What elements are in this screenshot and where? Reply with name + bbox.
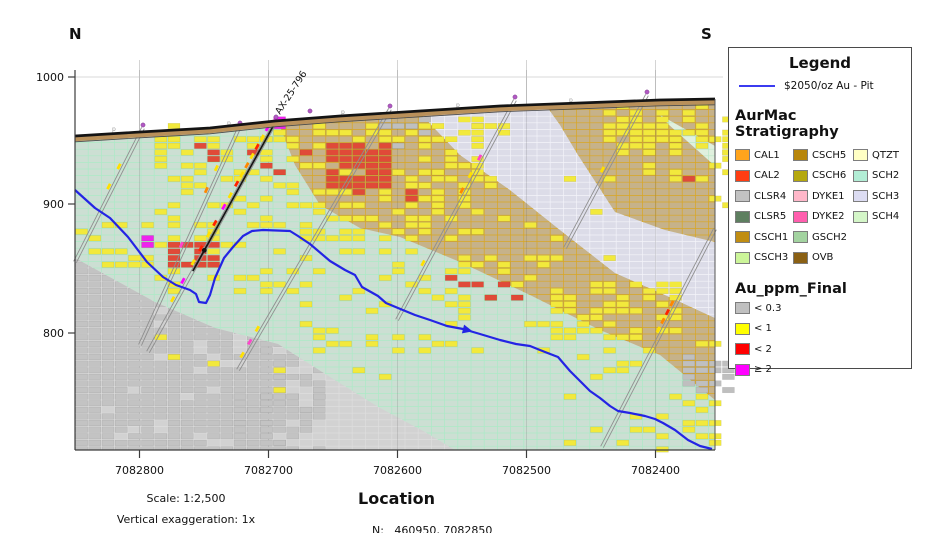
legend-entry-label: GSCH2 xyxy=(812,232,847,243)
x-tick-label: 7082800 xyxy=(115,464,164,477)
stratigraphy-legend-title: AurMac Stratigraphy xyxy=(735,108,905,140)
legend-entry-label: < 1 xyxy=(754,323,772,334)
x-tick-label: 7082700 xyxy=(244,464,293,477)
legend-swatch xyxy=(735,343,750,355)
legend-swatch xyxy=(735,364,750,376)
legend-entry-SCH2: SCH2 xyxy=(853,166,907,187)
collar-dot xyxy=(388,104,392,108)
legend-entry-CLSR4: CLSR4 xyxy=(735,186,793,207)
legend-entry-label: CSCH3 xyxy=(754,252,788,263)
legend-swatch xyxy=(735,323,750,335)
drillhole-label: AX-25-796 xyxy=(273,69,309,117)
legend-entry-CSCH6: CSCH6 xyxy=(793,166,853,187)
collar-dot xyxy=(274,115,278,119)
legend-swatch xyxy=(853,211,868,223)
legend-swatch xyxy=(735,302,750,314)
legend-swatch xyxy=(793,149,808,161)
collar-dot xyxy=(645,90,649,94)
legend-entry-CAL2: CAL2 xyxy=(735,166,793,187)
legend-swatch xyxy=(735,252,750,264)
y-tick-label: 800 xyxy=(43,327,64,340)
legend-swatch xyxy=(853,190,868,202)
legend-entry-label: DYKE2 xyxy=(812,211,845,222)
legend-swatch xyxy=(793,190,808,202)
legend-swatch xyxy=(735,170,750,182)
legend-entry-CAL1: CAL1 xyxy=(735,145,793,166)
legend-title: Legend xyxy=(735,54,905,72)
legend-entry-label: CAL2 xyxy=(754,170,780,181)
legend-entry-label: CSCH5 xyxy=(812,150,846,161)
legend-entry-label: QTZT xyxy=(872,150,899,161)
pit-line-swatch xyxy=(739,85,775,87)
legend-entry-SCH4: SCH4 xyxy=(853,207,907,228)
legend-entry-label: CLSR5 xyxy=(754,211,786,222)
legend-swatch xyxy=(735,149,750,161)
collar-dot xyxy=(513,95,517,99)
legend-entry-label: SCH3 xyxy=(872,191,899,202)
pit-line-label: $2050/oz Au - Pit xyxy=(784,80,874,92)
location-coordinates: N: 460950, 7082850 xyxy=(372,524,492,533)
legend-swatch xyxy=(735,211,750,223)
legend-entry-label: CSCH1 xyxy=(754,232,788,243)
legend-panel: Legend $2050/oz Au - Pit AurMac Stratigr… xyxy=(728,47,912,369)
legend-swatch xyxy=(793,211,808,223)
legend-entry-GSCH2: GSCH2 xyxy=(793,227,853,248)
legend-entry-label: CAL1 xyxy=(754,150,780,161)
legend-swatch xyxy=(853,149,868,161)
legend-entry-≥ 2: ≥ 2 xyxy=(735,364,905,376)
legend-swatch xyxy=(735,231,750,243)
legend-entry-label: SCH4 xyxy=(872,211,899,222)
legend-swatch xyxy=(793,252,808,264)
collar-dot xyxy=(141,123,145,127)
legend-entry-label: ≥ 2 xyxy=(754,364,772,375)
scale-note: Scale: 1:2,500 xyxy=(80,492,292,505)
y-tick-label: 1000 xyxy=(36,71,64,84)
legend-swatch xyxy=(793,170,808,182)
legend-entry-label: < 2 xyxy=(754,344,772,355)
grade-legend-rows: < 0.3< 1< 2≥ 2 xyxy=(735,302,905,376)
legend-entry-< 2: < 2 xyxy=(735,343,905,355)
legend-entry-OVB: OVB xyxy=(793,248,853,269)
legend-swatch xyxy=(735,190,750,202)
legend-entry-CLSR5: CLSR5 xyxy=(735,207,793,228)
legend-entry-DYKE2: DYKE2 xyxy=(793,207,853,228)
surface-peg-mark: p xyxy=(112,126,116,133)
collar-dot xyxy=(308,109,312,113)
legend-entry-< 1: < 1 xyxy=(735,323,905,335)
legend-swatch xyxy=(853,170,868,182)
grade-legend-title: Au_ppm_Final xyxy=(735,281,905,297)
stratigraphy-legend-grid: CAL1CAL2CLSR4CLSR5CSCH1CSCH3CSCH5CSCH6DY… xyxy=(735,145,905,268)
legend-entry-SCH3: SCH3 xyxy=(853,186,907,207)
legend-entry-label: SCH2 xyxy=(872,170,899,181)
legend-entry-QTZT: QTZT xyxy=(853,145,907,166)
x-tick-label: 7082500 xyxy=(502,464,551,477)
legend-entry-label: CLSR4 xyxy=(754,191,786,202)
y-tick-label: 900 xyxy=(43,198,64,211)
legend-entry-CSCH1: CSCH1 xyxy=(735,227,793,248)
legend-entry-DYKE1: DYKE1 xyxy=(793,186,853,207)
x-tick-label: 7082400 xyxy=(631,464,680,477)
legend-entry-CSCH5: CSCH5 xyxy=(793,145,853,166)
x-tick-label: 7082600 xyxy=(373,464,422,477)
legend-entry-label: CSCH6 xyxy=(812,170,846,181)
legend-entry-CSCH3: CSCH3 xyxy=(735,248,793,269)
location-heading: Location xyxy=(358,489,435,508)
legend-entry-< 0.3: < 0.3 xyxy=(735,302,905,314)
legend-entry-label: DYKE1 xyxy=(812,191,845,202)
legend-entry-label: OVB xyxy=(812,252,833,263)
legend-entry-label: < 0.3 xyxy=(754,303,781,314)
legend-pit-entry: $2050/oz Au - Pit xyxy=(739,80,905,92)
geological-section-view: N S AX-25-796ppppp1000900800708280070827… xyxy=(0,0,950,533)
legend-swatch xyxy=(793,231,808,243)
vertical-exaggeration-note: Vertical exaggeration: 1x xyxy=(80,513,292,526)
